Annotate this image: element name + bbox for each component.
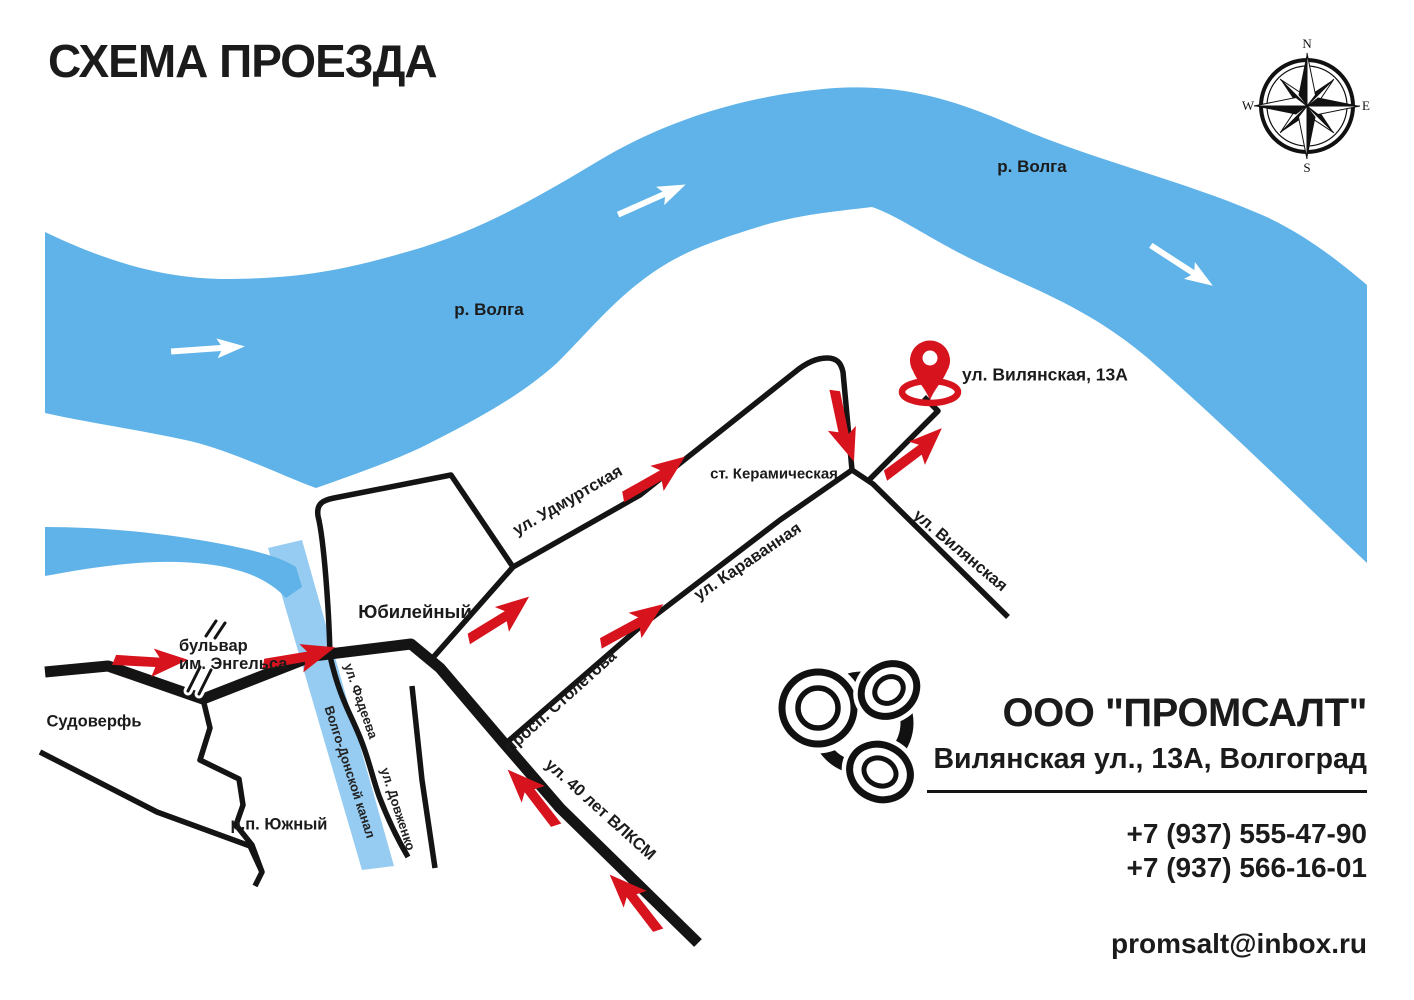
compass-east-label: E [1362,98,1370,113]
location-pin-icon [902,340,958,403]
river-arm-shape [45,527,302,598]
street-label-engels: бульвар им. Энгельса [179,637,287,674]
volga-river-shape [45,87,1367,563]
river-label: р. Волга [997,157,1066,177]
place-label-yuzhny: р.п. Южный [231,816,328,835]
route-arrow-icon [462,586,538,656]
page-title: СХЕМА ПРОЕЗДА [48,34,437,88]
compass-rose-icon: N E S W [1242,36,1370,175]
company-info: ООО "ПРОМСАЛТ" Вилянская ул., 13А, Волго… [927,692,1367,960]
divider [927,790,1367,793]
compass-north-label: N [1302,36,1312,51]
company-address: Вилянская ул., 13А, Волгоград [927,743,1367,776]
place-label-yubileyny: Юбилейный [358,601,471,623]
company-name: ООО "ПРОМСАЛТ" [927,692,1367,734]
company-phone-2: +7 (937) 566-16-01 [927,851,1367,885]
compass-west-label: W [1242,98,1255,113]
place-label-sudoverf: Судоверфь [47,713,142,732]
company-phone-1: +7 (937) 555-47-90 [927,817,1367,851]
street-label-engels-line1: бульвар [179,637,287,655]
compass-cardinal-points [1254,53,1360,159]
company-email: promsalt@inbox.ru [927,928,1367,960]
company-logo-icon [777,647,933,815]
destination-address-label: ул. Вилянская, 13А [962,365,1128,386]
route-arrow-icon [815,386,867,467]
compass-south-label: S [1303,160,1310,175]
station-label: ст. Керамическая [710,466,838,483]
street-label-engels-line2: им. Энгельса [179,655,287,673]
road-vilyanskaya [852,470,1008,617]
driving-directions-map: N E S W СХЕМА ПРОЕЗДА р. Волга р. Вол [0,0,1414,1000]
river-label: р. Волга [454,300,523,320]
company-phones: +7 (937) 555-47-90 +7 (937) 566-16-01 [927,817,1367,884]
route-arrow-icon [878,418,952,492]
route-arrow-icon [600,865,674,938]
